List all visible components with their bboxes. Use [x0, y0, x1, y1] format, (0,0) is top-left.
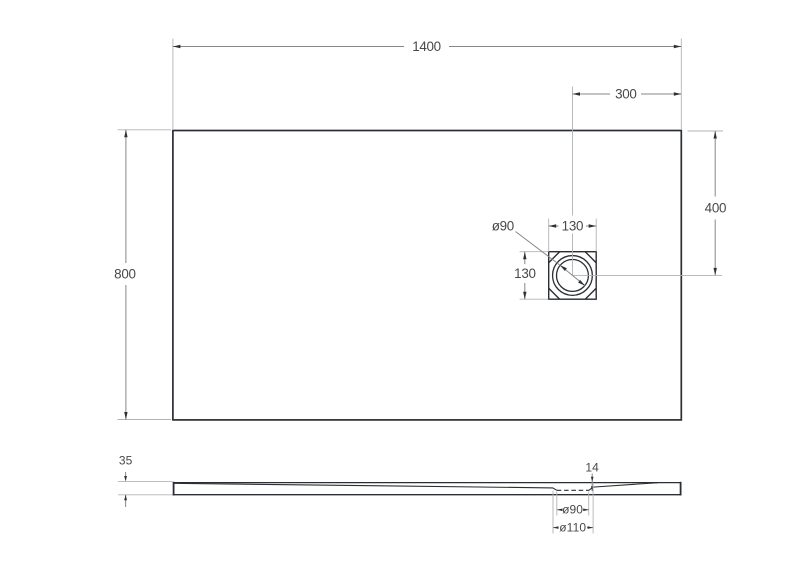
svg-text:ø90: ø90 [562, 503, 583, 517]
svg-text:35: 35 [119, 453, 133, 467]
svg-text:130: 130 [562, 219, 583, 234]
svg-text:14: 14 [585, 461, 599, 475]
svg-text:400: 400 [705, 201, 726, 216]
svg-text:1400: 1400 [412, 39, 441, 54]
svg-text:ø110: ø110 [559, 521, 586, 535]
svg-text:ø90: ø90 [492, 219, 514, 234]
svg-text:800: 800 [114, 267, 135, 282]
svg-text:130: 130 [514, 266, 535, 281]
svg-text:300: 300 [615, 87, 636, 102]
